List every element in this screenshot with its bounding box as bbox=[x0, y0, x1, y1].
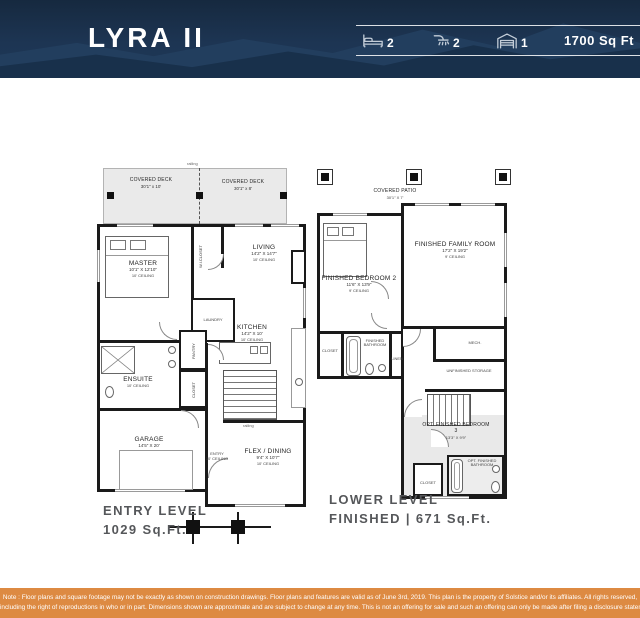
room-name: MASTER bbox=[129, 260, 157, 267]
room-label-closet2: CLOSET bbox=[415, 481, 441, 485]
entry-level-caption: ENTRY LEVEL 1029 Sq.Ft. bbox=[103, 502, 207, 540]
sqft-stat: 1700 Sq Ft bbox=[564, 33, 634, 48]
kitchen-island-sketch bbox=[219, 342, 271, 364]
room-label-storage: UNFINISHED STORAGE bbox=[433, 369, 505, 373]
disclaimer-line-1: Note : Floor plans and square footage ma… bbox=[0, 593, 640, 603]
room-dims: 14'5" X 20' bbox=[138, 444, 159, 449]
stairs-entry bbox=[223, 370, 277, 420]
floor-plan-lower-level: COVERED PATIO 30'1" X 7' FINISHED bbox=[315, 163, 515, 538]
toilet-sketch bbox=[491, 481, 500, 493]
room-label-kitchen: KITCHEN 14'2" X 10' 10' CEILING bbox=[217, 324, 287, 343]
baths-stat: 2 bbox=[430, 32, 460, 49]
window-marker bbox=[461, 203, 495, 206]
wall-segment bbox=[97, 340, 179, 343]
wall-segment bbox=[433, 329, 436, 362]
wall-segment bbox=[433, 359, 507, 362]
room-label-bedroom3: OPT. FINISHED BEDROOM 3 13'3" X 9'9" bbox=[421, 423, 491, 440]
window-marker bbox=[504, 233, 507, 267]
room-name: LINEN bbox=[391, 357, 403, 361]
room-name: FINISHED BEDROOM 2 bbox=[322, 275, 397, 282]
bed-sketch-bedroom2 bbox=[323, 223, 367, 277]
sink-sketch bbox=[168, 360, 176, 368]
header-banner: LYRA II 2 2 1 1 bbox=[0, 0, 640, 78]
wall-segment bbox=[97, 408, 207, 411]
room-dims: 30'1" x 8' bbox=[234, 187, 252, 192]
wall-segment bbox=[425, 389, 507, 392]
kitchen-sink bbox=[295, 378, 303, 386]
window-marker bbox=[117, 224, 153, 227]
stats-bar: 2 2 1 1700 Sq Ft bbox=[356, 25, 640, 56]
window-marker bbox=[235, 504, 285, 507]
room-label-entry: ENTRY 10' CEILING bbox=[201, 452, 233, 462]
shower-sketch bbox=[101, 346, 135, 374]
room-label-deck-left: COVERED DECK 30'1" x 10' bbox=[109, 178, 193, 190]
room-ceiling: 9' CEILING bbox=[349, 289, 369, 293]
sink-sketch bbox=[378, 364, 386, 372]
room-name: LIVING bbox=[253, 244, 276, 251]
room-dims: 30'1" X 7' bbox=[387, 196, 404, 200]
room-ceiling: 10' CEILING bbox=[253, 258, 275, 262]
room-label-garage: GARAGE 14'5" X 20' bbox=[103, 436, 195, 449]
patio-post bbox=[317, 169, 333, 185]
window-marker bbox=[504, 283, 507, 317]
window-marker bbox=[303, 288, 306, 318]
entry-level-sqft: 1029 Sq.Ft. bbox=[103, 521, 207, 540]
room-name: COVERED PATIO bbox=[374, 189, 417, 195]
disclaimer-footer: Note : Floor plans and square footage ma… bbox=[0, 588, 640, 618]
room-name: FINISHED BATHROOM bbox=[359, 339, 391, 348]
room-ceiling: 10' CEILING bbox=[132, 274, 154, 278]
beds-stat: 2 bbox=[362, 32, 394, 49]
wall-segment bbox=[191, 224, 194, 298]
room-label-family: FINISHED FAMILY ROOM 17'2" X 19'2" 9' CE… bbox=[413, 241, 497, 260]
room-name: COVERED DECK bbox=[222, 180, 264, 186]
garage-icon bbox=[496, 32, 518, 49]
wall-segment bbox=[341, 334, 344, 379]
beds-count: 2 bbox=[387, 37, 394, 49]
toilet-sketch bbox=[365, 363, 374, 375]
window-marker bbox=[97, 250, 100, 282]
room-name: MECH. bbox=[469, 341, 482, 345]
pantry-label: PANTRY bbox=[191, 343, 196, 359]
railing-label-stairs: railing bbox=[243, 423, 254, 428]
room-label-patio: COVERED PATIO 30'1" X 7' bbox=[355, 189, 435, 200]
deck-post bbox=[107, 192, 114, 199]
wic-label: W.I.CLOSET bbox=[198, 245, 203, 268]
room-ceiling: 10' CEILING bbox=[257, 462, 279, 466]
pillow bbox=[130, 240, 146, 250]
page-title: LYRA II bbox=[88, 22, 205, 54]
room-label-mech: MECH. bbox=[455, 341, 495, 345]
deck-post bbox=[196, 192, 203, 199]
closet-label: CLOSET bbox=[191, 382, 196, 398]
kitchen-counter bbox=[291, 328, 306, 408]
room-label-deck-right: COVERED DECK 30'1" x 8' bbox=[203, 180, 283, 192]
garage-floor-marking bbox=[119, 450, 193, 490]
room-ceiling: 9' CEILING bbox=[445, 255, 465, 259]
window-marker bbox=[415, 203, 449, 206]
room-label-bathroom: FINISHED BATHROOM bbox=[359, 339, 391, 348]
stove-burner bbox=[250, 346, 258, 354]
railing-label-top: railing bbox=[187, 161, 198, 166]
room-label-living: LIVING 14'2" X 14'7" 10' CEILING bbox=[227, 244, 301, 263]
porch-post bbox=[231, 520, 245, 534]
pillow bbox=[110, 240, 126, 250]
blanket-line bbox=[106, 255, 168, 256]
garage-door-marker bbox=[115, 489, 185, 492]
room-label-ensuite: ENSUITE 10' CEILING bbox=[101, 376, 175, 389]
stove-burner bbox=[260, 346, 268, 354]
room-name: FLEX / DINING bbox=[244, 448, 291, 455]
room-ceiling: 10' CEILING bbox=[241, 338, 263, 342]
room-label-bedroom2: FINISHED BEDROOM 2 11'6" X 13'9" 9' CEIL… bbox=[321, 275, 397, 294]
patio-post bbox=[495, 169, 511, 185]
room-name: FINISHED FAMILY ROOM bbox=[415, 241, 496, 248]
lower-level-caption: LOWER LEVEL FINISHED | 671 Sq.Ft. bbox=[329, 491, 491, 529]
baths-count: 2 bbox=[453, 37, 460, 49]
room-label-flex: FLEX / DINING 9'4" X 10'7" 10' CEILING bbox=[235, 448, 301, 467]
room-label-master: MASTER 10'1" X 12'10" 10' CEILING bbox=[101, 260, 185, 279]
shower-icon bbox=[430, 32, 450, 49]
room-ceiling: 10' CEILING bbox=[206, 457, 228, 461]
garage-count: 1 bbox=[521, 37, 528, 49]
pillow bbox=[342, 227, 354, 236]
room-label-closet1: CLOSET bbox=[317, 349, 343, 353]
room-name: CLOSET bbox=[322, 349, 338, 353]
room-dims: 13'3" X 9'9" bbox=[446, 436, 466, 440]
room-name: COVERED DECK bbox=[130, 178, 172, 184]
room-name: UNFINISHED STORAGE bbox=[446, 369, 491, 373]
wall-segment bbox=[223, 420, 306, 423]
bed-icon bbox=[362, 32, 384, 49]
entry-level-title: ENTRY LEVEL bbox=[103, 502, 207, 521]
window-marker bbox=[235, 224, 263, 227]
room-name: ENSUITE bbox=[123, 376, 153, 383]
patio-post bbox=[406, 169, 422, 185]
room-name: GARAGE bbox=[134, 436, 163, 443]
room-ceiling: 10' CEILING bbox=[127, 384, 149, 388]
floor-plan-entry-level: railing COVERED DECK 30'1" x 10' COVERED… bbox=[95, 158, 315, 563]
room-name: OPT. FINISHED BEDROOM 3 bbox=[421, 423, 491, 435]
bathtub-sketch bbox=[451, 459, 463, 493]
deck-post bbox=[280, 192, 287, 199]
room-name: OPT. FINISHED BATHROOM bbox=[463, 459, 501, 468]
pillow bbox=[327, 227, 339, 236]
room-label-linen: LINEN bbox=[387, 357, 407, 361]
window-marker bbox=[333, 213, 367, 216]
room-name: CLOSET bbox=[420, 481, 436, 485]
room-name: LAUNDRY bbox=[203, 318, 222, 322]
sink-sketch bbox=[168, 346, 176, 354]
window-marker bbox=[271, 224, 299, 227]
disclaimer-line-2: including the right of reproductions in … bbox=[0, 603, 640, 613]
lower-level-title: LOWER LEVEL bbox=[329, 491, 491, 510]
room-label-optbath: OPT. FINISHED BATHROOM bbox=[463, 459, 501, 468]
room-dims: 30'1" x 10' bbox=[141, 185, 162, 190]
lower-level-sqft: FINISHED | 671 Sq.Ft. bbox=[329, 510, 491, 529]
room-name: KITCHEN bbox=[237, 324, 267, 331]
garage-stat: 1 bbox=[496, 32, 528, 49]
blanket-line bbox=[324, 240, 366, 241]
